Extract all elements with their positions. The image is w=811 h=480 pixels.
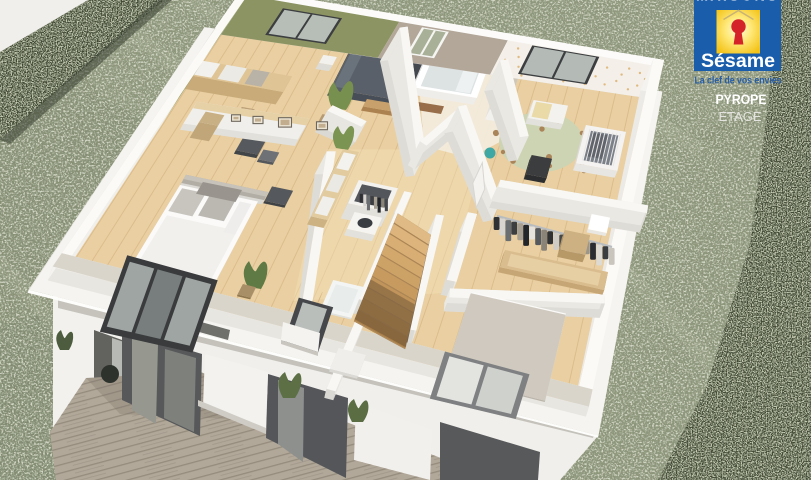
svg-text:La clef de vos envies: La clef de vos envies — [695, 76, 782, 87]
svg-text:PYROPE: PYROPE — [716, 92, 767, 107]
svg-text:MAISONS: MAISONS — [696, 0, 779, 5]
svg-text:Sésame: Sésame — [701, 51, 775, 72]
svg-text:ETAGE: ETAGE — [719, 109, 762, 124]
